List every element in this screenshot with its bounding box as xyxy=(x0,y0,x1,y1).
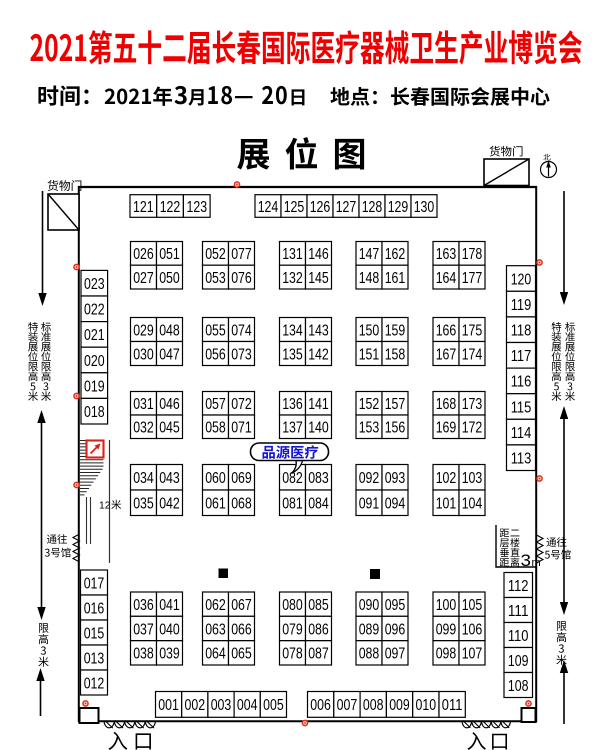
svg-text:115: 115 xyxy=(511,399,532,416)
svg-text:156: 156 xyxy=(385,420,406,437)
svg-text:173: 173 xyxy=(462,396,483,413)
svg-text:175: 175 xyxy=(462,322,483,339)
svg-text:047: 047 xyxy=(159,346,180,363)
svg-text:090: 090 xyxy=(359,597,380,614)
svg-text:118: 118 xyxy=(511,323,532,340)
svg-text:12: 12 xyxy=(99,500,111,512)
svg-text:068: 068 xyxy=(231,496,252,513)
svg-text:112: 112 xyxy=(508,578,529,595)
svg-text:119: 119 xyxy=(511,297,532,314)
svg-text:164: 164 xyxy=(436,270,457,287)
svg-text:065: 065 xyxy=(231,646,252,663)
svg-text:125: 125 xyxy=(284,199,305,216)
svg-text:095: 095 xyxy=(385,597,406,614)
svg-text:053: 053 xyxy=(205,270,226,287)
svg-text:026: 026 xyxy=(133,246,154,263)
svg-text:103: 103 xyxy=(462,470,483,487)
svg-text:040: 040 xyxy=(159,621,180,638)
svg-text:072: 072 xyxy=(231,396,252,413)
svg-text:129: 129 xyxy=(388,199,409,216)
svg-text:092: 092 xyxy=(359,470,380,487)
svg-text:036: 036 xyxy=(133,597,154,614)
svg-text:011: 011 xyxy=(442,697,463,714)
svg-text:005: 005 xyxy=(263,697,284,714)
svg-text:101: 101 xyxy=(436,496,457,513)
svg-text:071: 071 xyxy=(231,420,252,437)
svg-text:016: 016 xyxy=(84,600,105,617)
svg-text:032: 032 xyxy=(133,420,154,437)
svg-text:m: m xyxy=(532,557,541,569)
svg-text:159: 159 xyxy=(385,322,406,339)
svg-text:147: 147 xyxy=(359,246,380,263)
svg-text:167: 167 xyxy=(436,346,457,363)
svg-text:064: 064 xyxy=(205,646,226,663)
svg-text:116: 116 xyxy=(511,374,532,391)
svg-text:052: 052 xyxy=(205,246,226,263)
svg-text:073: 073 xyxy=(231,346,252,363)
svg-text:142: 142 xyxy=(308,346,329,363)
svg-text:141: 141 xyxy=(308,396,329,413)
svg-text:106: 106 xyxy=(462,621,483,638)
svg-text:127: 127 xyxy=(336,199,357,216)
svg-text:107: 107 xyxy=(462,646,483,663)
svg-text:067: 067 xyxy=(231,597,252,614)
svg-text:018: 018 xyxy=(84,404,105,421)
svg-text:006: 006 xyxy=(310,697,331,714)
svg-text:031: 031 xyxy=(133,396,154,413)
svg-text:007: 007 xyxy=(337,697,358,714)
svg-text:102: 102 xyxy=(436,470,457,487)
svg-text:021: 021 xyxy=(84,327,105,344)
svg-text:121: 121 xyxy=(133,199,154,216)
svg-text:066: 066 xyxy=(231,621,252,638)
svg-text:132: 132 xyxy=(282,270,303,287)
svg-text:003: 003 xyxy=(211,697,232,714)
svg-text:157: 157 xyxy=(385,396,406,413)
svg-text:093: 093 xyxy=(385,470,406,487)
svg-text:088: 088 xyxy=(359,646,380,663)
svg-text:020: 020 xyxy=(84,353,105,370)
svg-text:135: 135 xyxy=(282,346,303,363)
svg-text:001: 001 xyxy=(158,697,179,714)
svg-text:169: 169 xyxy=(436,420,457,437)
svg-text:148: 148 xyxy=(359,270,380,287)
svg-text:046: 046 xyxy=(159,396,180,413)
svg-text:130: 130 xyxy=(414,199,435,216)
svg-text:104: 104 xyxy=(462,496,483,513)
svg-text:086: 086 xyxy=(308,621,329,638)
svg-text:097: 097 xyxy=(385,646,406,663)
svg-text:050: 050 xyxy=(159,270,180,287)
svg-text:022: 022 xyxy=(84,302,105,319)
svg-text:034: 034 xyxy=(133,470,154,487)
svg-text:158: 158 xyxy=(385,346,406,363)
svg-text:122: 122 xyxy=(160,199,181,216)
svg-text:048: 048 xyxy=(159,322,180,339)
svg-text:163: 163 xyxy=(436,246,457,263)
svg-text:069: 069 xyxy=(231,470,252,487)
svg-text:131: 131 xyxy=(282,246,303,263)
svg-text:177: 177 xyxy=(462,270,483,287)
svg-text:010: 010 xyxy=(416,697,437,714)
svg-text:162: 162 xyxy=(385,246,406,263)
svg-text:013: 013 xyxy=(84,650,105,667)
svg-text:091: 091 xyxy=(359,496,380,513)
svg-text:079: 079 xyxy=(282,621,303,638)
svg-text:008: 008 xyxy=(363,697,384,714)
svg-text:153: 153 xyxy=(359,420,380,437)
svg-text:012: 012 xyxy=(84,675,105,692)
svg-text:150: 150 xyxy=(359,322,380,339)
svg-text:114: 114 xyxy=(511,425,532,442)
svg-text:087: 087 xyxy=(308,646,329,663)
svg-text:058: 058 xyxy=(205,420,226,437)
svg-text:080: 080 xyxy=(282,597,303,614)
svg-text:077: 077 xyxy=(231,246,252,263)
svg-text:041: 041 xyxy=(159,597,180,614)
svg-text:085: 085 xyxy=(308,597,329,614)
svg-text:042: 042 xyxy=(159,496,180,513)
svg-text:174: 174 xyxy=(462,346,483,363)
svg-text:019: 019 xyxy=(84,378,105,395)
svg-text:039: 039 xyxy=(159,646,180,663)
svg-text:113: 113 xyxy=(511,451,532,468)
svg-text:094: 094 xyxy=(385,496,406,513)
svg-text:062: 062 xyxy=(205,597,226,614)
svg-text:051: 051 xyxy=(159,246,180,263)
svg-text:037: 037 xyxy=(133,621,154,638)
svg-text:063: 063 xyxy=(205,621,226,638)
svg-text:057: 057 xyxy=(205,396,226,413)
svg-text:002: 002 xyxy=(185,697,206,714)
svg-text:099: 099 xyxy=(436,621,457,638)
svg-text:060: 060 xyxy=(205,470,226,487)
svg-text:004: 004 xyxy=(237,697,258,714)
svg-text:076: 076 xyxy=(231,270,252,287)
svg-text:140: 140 xyxy=(308,420,329,437)
svg-text:096: 096 xyxy=(385,621,406,638)
svg-text:143: 143 xyxy=(308,322,329,339)
svg-text:029: 029 xyxy=(133,322,154,339)
svg-text:098: 098 xyxy=(436,646,457,663)
svg-text:123: 123 xyxy=(187,199,208,216)
svg-text:117: 117 xyxy=(511,348,532,365)
svg-text:038: 038 xyxy=(133,646,154,663)
svg-text:100: 100 xyxy=(436,597,457,614)
svg-text:151: 151 xyxy=(359,346,380,363)
svg-text:111: 111 xyxy=(508,603,529,620)
svg-text:027: 027 xyxy=(133,270,154,287)
svg-text:045: 045 xyxy=(159,420,180,437)
svg-text:152: 152 xyxy=(359,396,380,413)
svg-text:178: 178 xyxy=(462,246,483,263)
svg-text:168: 168 xyxy=(436,396,457,413)
svg-text:055: 055 xyxy=(205,322,226,339)
svg-text:084: 084 xyxy=(308,496,329,513)
svg-text:074: 074 xyxy=(231,322,252,339)
svg-text:124: 124 xyxy=(258,199,279,216)
svg-text:043: 043 xyxy=(159,470,180,487)
svg-text:166: 166 xyxy=(436,322,457,339)
svg-text:081: 081 xyxy=(282,496,303,513)
svg-text:110: 110 xyxy=(508,628,529,645)
svg-text:035: 035 xyxy=(133,496,154,513)
svg-text:120: 120 xyxy=(511,271,532,288)
svg-text:023: 023 xyxy=(84,276,105,293)
svg-text:078: 078 xyxy=(282,646,303,663)
svg-text:146: 146 xyxy=(308,246,329,263)
svg-text:137: 137 xyxy=(282,420,303,437)
svg-text:3: 3 xyxy=(521,551,532,570)
svg-text:161: 161 xyxy=(385,270,406,287)
svg-text:109: 109 xyxy=(508,653,529,670)
svg-text:136: 136 xyxy=(282,396,303,413)
svg-text:089: 089 xyxy=(359,621,380,638)
svg-text:126: 126 xyxy=(310,199,331,216)
svg-text:134: 134 xyxy=(282,322,303,339)
svg-text:128: 128 xyxy=(362,199,383,216)
svg-text:056: 056 xyxy=(205,346,226,363)
svg-text:083: 083 xyxy=(308,470,329,487)
svg-text:015: 015 xyxy=(84,625,105,642)
svg-text:145: 145 xyxy=(308,270,329,287)
svg-text:009: 009 xyxy=(389,697,410,714)
svg-text:105: 105 xyxy=(462,597,483,614)
svg-text:030: 030 xyxy=(133,346,154,363)
svg-text:108: 108 xyxy=(508,678,529,695)
svg-text:172: 172 xyxy=(462,420,483,437)
svg-text:061: 061 xyxy=(205,496,226,513)
svg-text:017: 017 xyxy=(84,575,105,592)
